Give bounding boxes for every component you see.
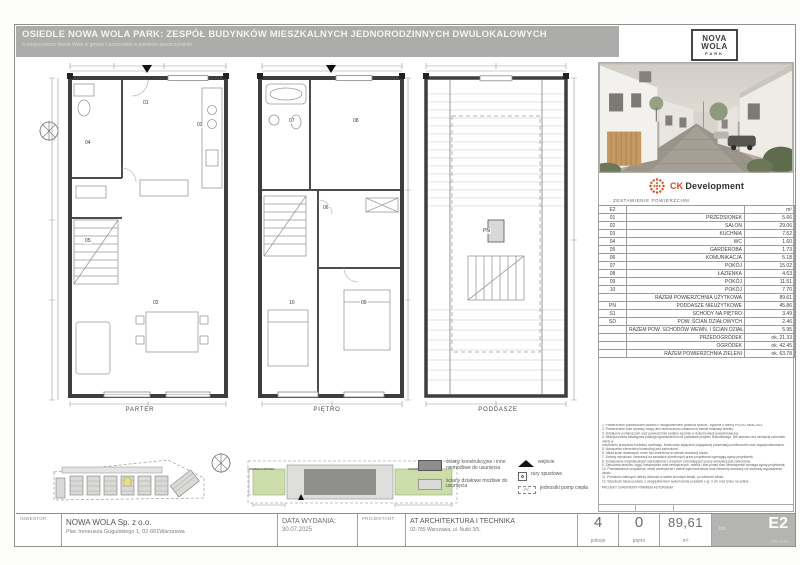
nova-wola-park-logo: NOVA WOLA PARK: [691, 29, 738, 61]
sheet-header: OSIEDLE NOWA WOLA PARK: ZESPÓŁ BUDYNKÓW …: [16, 26, 619, 57]
legend-partition-label: ściany działowe możliwe do usunięcia: [446, 479, 510, 491]
developer-label: Development: [685, 181, 744, 191]
caption-pietro: PIĘTRO: [252, 407, 402, 413]
inwestor-cell: NOWA WOLA Sp. z o.o. Plac Ireneusza Gugu…: [62, 514, 278, 546]
room-label-02: 02: [152, 300, 160, 306]
rooms-label: pokoje: [591, 538, 606, 544]
sheet-subtitle: w miejscowości Nowa Wola w gminie Leszno…: [22, 42, 613, 48]
room-label-01: 01: [142, 100, 150, 106]
floorplan-pietro-drawing: [248, 60, 413, 408]
unit-code: E2: [768, 516, 788, 532]
lok-label: lok.: [719, 526, 727, 532]
developer-logo: CKDevelopment: [599, 175, 793, 197]
issue-date-cell: DATA WYDANIA: 30.07.2025: [278, 514, 358, 546]
designer-name: AT ARCHITEKTURA I TECHNIKA: [410, 518, 573, 525]
room-label-03: 03: [196, 122, 204, 128]
legend-item-partition: ściany działowe możliwe do usunięcia: [418, 479, 510, 491]
compass-icon: [210, 452, 232, 474]
area-cell: 89,61 m²: [660, 514, 712, 546]
developer-name: CKDevelopment: [670, 181, 744, 191]
park-logo-line2: WOLA: [701, 43, 727, 51]
entrance-triangle-icon: [518, 460, 534, 467]
floor-number: 0: [635, 515, 643, 531]
inwestor-name: NOWA WOLA Sp. z o.o.: [66, 518, 273, 527]
area-table: E2m² 01PRZEDSIONEK5.66 02SALON29.06 03KU…: [598, 205, 795, 358]
sheet-title: OSIEDLE NOWA WOLA PARK: ZESPÓŁ BUDYNKÓW …: [22, 29, 613, 40]
table-row: 04WC1.60: [599, 238, 795, 246]
unit-code-cell: lok. E2 Z02 B16: [712, 514, 795, 546]
room-label-pn: PN: [482, 228, 491, 234]
caption-parter: PARTER: [60, 407, 220, 413]
heat-pump-icon: PC: [518, 486, 536, 494]
ck-dots-icon: [648, 177, 666, 195]
inwestor-label: INWESTOR:: [20, 516, 57, 521]
table-row: E2m²: [599, 206, 795, 214]
footnotes: 1. Powierzchnie pomieszczeń podano z uwz…: [602, 424, 791, 490]
table-row: 02SALON29.06: [599, 222, 795, 230]
legend: ściany konstrukcyjne i inne niemożliwe d…: [418, 457, 596, 509]
table-row: 01PRZEDSIONEK5.66: [599, 214, 795, 222]
table-row: 05GARDEROBA1.73: [599, 246, 795, 254]
designer-label-cell: PROJEKTANT:: [358, 514, 406, 546]
table-row: RAZEM POWIERZCHNIA UŻYTKOWA89.61: [599, 294, 795, 302]
room-label-04: 04: [84, 140, 92, 146]
designer-address: 02-785 Warszawa, ul. Nutki 3/5,: [410, 527, 573, 533]
title-block: INWESTOR: NOWA WOLA Sp. z o.o. Plac Iren…: [16, 513, 795, 546]
footnote-line: 10. Przedstawione urządzenia, strefy wew…: [602, 468, 791, 476]
room-label-09: 09: [360, 300, 368, 306]
structural-wall-swatch: [418, 460, 442, 471]
room-label-10: 10: [288, 300, 296, 306]
inwestor-label-cell: INWESTOR:: [16, 514, 62, 546]
legend-item-pipes: rury spustowe: [518, 472, 596, 481]
inwestor-address: Plac Ireneusza Gugulskiego 1, 02-661Wars…: [66, 529, 273, 535]
legend-structural-label: ściany konstrukcyjne i inne niemożliwe d…: [446, 460, 510, 472]
legend-heat-pump-label: jednostki pomp ciepła: [540, 486, 588, 492]
partition-wall-swatch: [418, 479, 442, 490]
table-row: 07POKÓJ15.02: [599, 262, 795, 270]
designer-cell: AT ARCHITEKTURA I TECHNIKA 02-785 Warsza…: [406, 514, 578, 546]
rooms-count: 4: [594, 515, 602, 531]
przedogrodek-label: PRZEDOGRÓDEK: [249, 468, 275, 471]
table-row: PNPODDASZE NIEUŻYTKOWE45.86: [599, 302, 795, 310]
table-row: 08ŁAZIENKA4.63: [599, 270, 795, 278]
table-row: RAZEM POWIERZCHNIA ZIELENIok. 63.78: [599, 350, 795, 358]
table-row: SDPOW. ŚCIAN DZIAŁOWYCH2.46: [599, 318, 795, 326]
area-unit: m²: [683, 538, 689, 544]
floorplan-sheet-page: OSIEDLE NOWA WOLA PARK: ZESPÓŁ BUDYNKÓW …: [0, 0, 800, 565]
area-table-title: ZESTAWIENIE POWIERZCHNI: [613, 198, 690, 203]
caption-poddasze: PODDASZE: [423, 407, 573, 413]
developer-prefix: CK: [670, 181, 683, 191]
room-label-07: 07: [288, 118, 296, 124]
floorplan-poddasze-drawing: [410, 60, 582, 408]
issue-date-value: 30.07.2025: [282, 527, 353, 533]
table-row: PRZEDOGRÓDEKok. 21.33: [599, 334, 795, 342]
unit-subcode: Z02 B16: [771, 539, 788, 544]
table-row: OGRÓDEKok. 42.45: [599, 342, 795, 350]
downpipe-icon: [518, 472, 527, 481]
rooms-cell: 4 pokoje: [578, 514, 619, 546]
table-row: RAZEM POW. SCHODÓW WEWN. I ŚCIAN DZIAŁ.5…: [599, 326, 795, 334]
room-label-08: 08: [352, 118, 360, 124]
table-row: 10POKÓJ7.70: [599, 286, 795, 294]
park-logo-line3: PARK: [705, 51, 724, 56]
floorplan-parter-drawing: [44, 60, 236, 408]
floor-label: piętro: [633, 538, 646, 544]
room-label-05: 05: [84, 238, 92, 244]
designer-label: PROJEKTANT:: [362, 516, 401, 521]
copyright-note: PROJEKT CHRONIONY PRAWEM AUTORSKIM: [602, 486, 791, 490]
legend-entrance-label: wejście: [538, 460, 554, 466]
legend-item-entrance: wejście: [518, 460, 596, 467]
table-row: 03KUCHNIA7.52: [599, 230, 795, 238]
legend-item-heat-pump: PC jednostki pomp ciepła: [518, 486, 596, 494]
table-row: 09POKÓJ11.51: [599, 278, 795, 286]
estate-photo-render: [599, 63, 793, 173]
footnote-line: 4. Niniejsza karta katalogowa podlega og…: [602, 436, 791, 444]
site-plan-drawing: [50, 452, 208, 510]
legend-item-structural: ściany konstrukcyjne i inne niemożliwe d…: [418, 460, 510, 472]
table-row: 06KOMUNIKACJA5.18: [599, 254, 795, 262]
footnote-line: 12. Wysokość lokalu podano z uwzględnien…: [602, 480, 791, 484]
area-value: 89,61: [668, 515, 703, 531]
legend-pipes-label: rury spustowe: [531, 472, 562, 478]
column-foot-cells: [598, 504, 794, 512]
room-label-06: 06: [322, 205, 330, 211]
issue-date-label: DATA WYDANIA:: [282, 518, 353, 525]
table-row: S1SCHODY NA PIĘTRO3.49: [599, 310, 795, 318]
floor-cell: 0 piętro: [619, 514, 660, 546]
